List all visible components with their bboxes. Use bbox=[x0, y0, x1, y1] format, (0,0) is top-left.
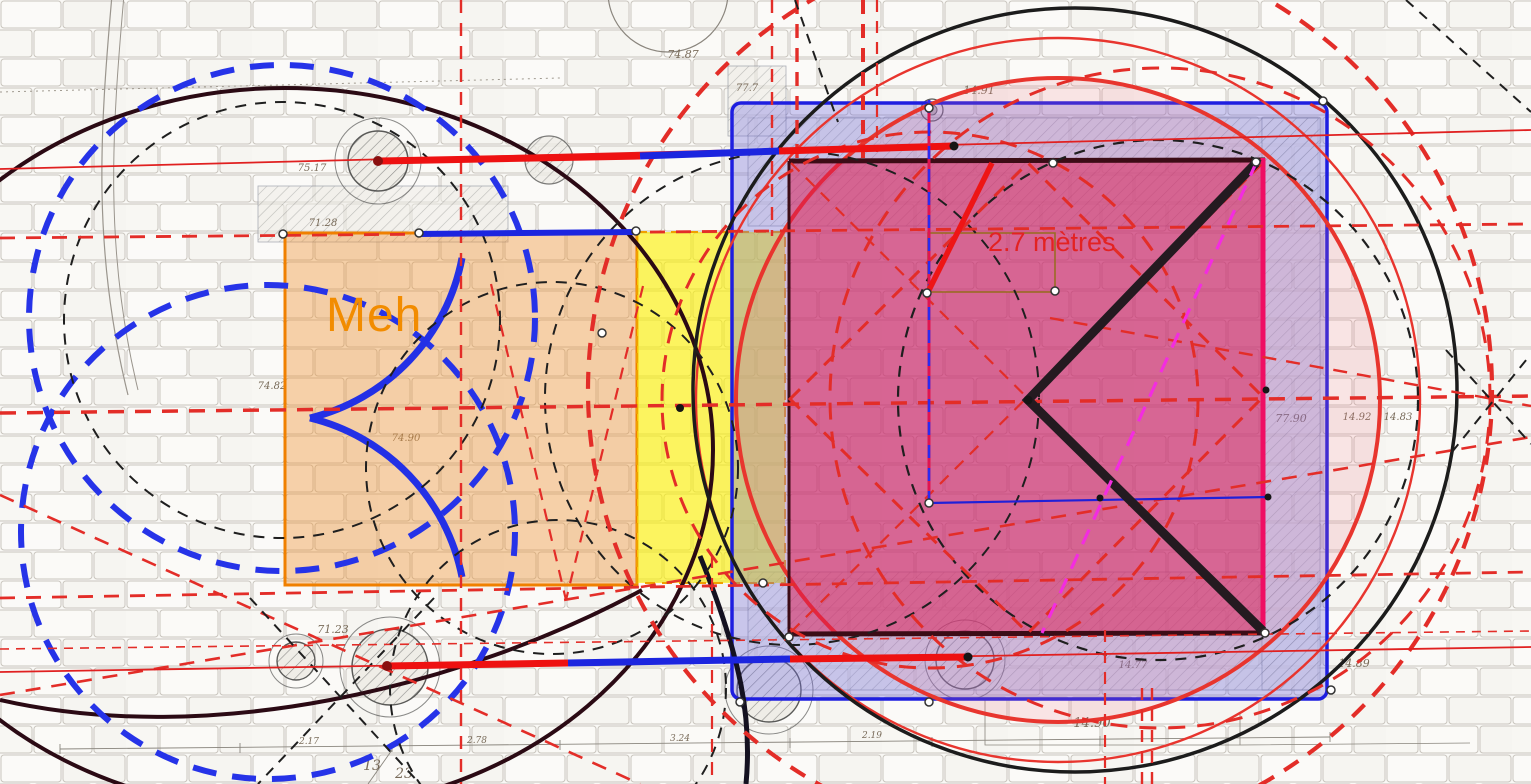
elevation-label: 74.87 bbox=[667, 48, 699, 61]
blue-measure-bar-upper bbox=[419, 232, 637, 234]
dimension-label: 2.78 bbox=[466, 736, 487, 746]
elevation-label: 71.28 bbox=[309, 218, 338, 229]
diagram-canvas: 74.87 75.17 71.28 74.82 74.90 77.7 14.91… bbox=[0, 0, 1531, 784]
elevation-label: 14.83 bbox=[1384, 412, 1413, 423]
elevation-label: 74.82 bbox=[258, 381, 287, 392]
dimension-label: 2.19 bbox=[861, 731, 882, 741]
elevation-label: 71.23 bbox=[317, 623, 349, 636]
measurement-label: 2.7 mètres bbox=[988, 229, 1116, 256]
geometric-analysis-diagram: 74.87 75.17 71.28 74.82 74.90 77.7 14.91… bbox=[0, 0, 1531, 784]
elevation-label: 77.7 bbox=[736, 83, 759, 94]
elevation-label: 75.17 bbox=[298, 163, 327, 174]
dimension-label: 3.24 bbox=[670, 734, 690, 744]
dimension-label: 2.17 bbox=[298, 737, 319, 747]
region-label: Meh bbox=[326, 292, 422, 340]
